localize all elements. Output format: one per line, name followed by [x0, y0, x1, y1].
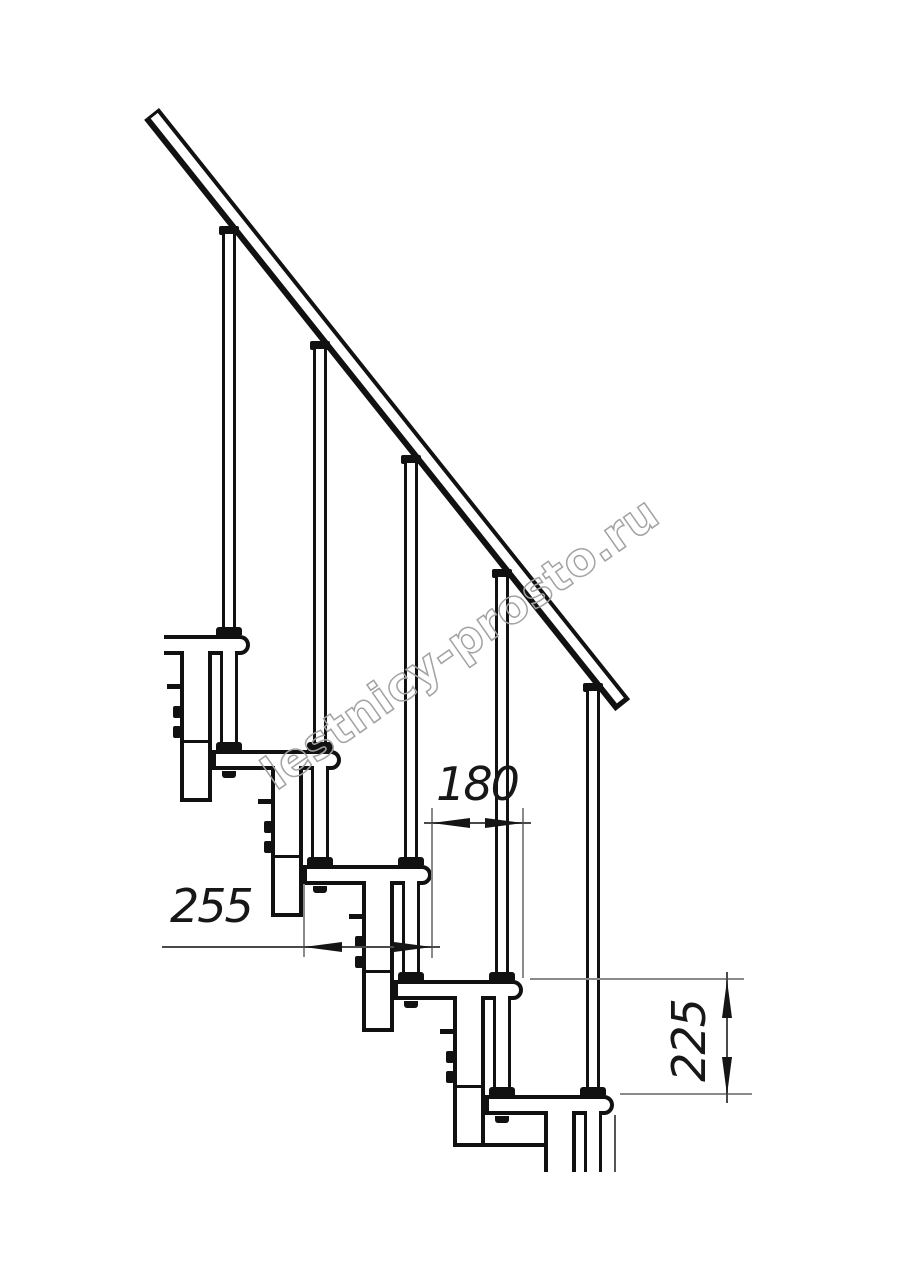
- dim-225-arrow-up: [722, 980, 732, 1018]
- dim-225-extension-line-top: [530, 978, 744, 980]
- dim-180-extension-line-right: [522, 808, 524, 978]
- dim-180-arrow-right: [485, 818, 523, 828]
- dim-180-extension-line-left: [431, 808, 433, 958]
- dim-225-arrow-down: [722, 1057, 732, 1095]
- dim-180-label: 180: [427, 760, 527, 808]
- staircase-technical-drawing: lestnicy-prosto.ru 180 255 225: [0, 0, 914, 1280]
- dimension-layer: 180 255 225: [0, 0, 914, 1280]
- dim-180-arrow-left: [432, 818, 470, 828]
- dim-225-label: 225: [665, 991, 713, 1091]
- dim-255-label: 255: [170, 882, 252, 930]
- dim-225-extension-line-bottom: [620, 1093, 752, 1095]
- dim-255-arrow-right: [394, 942, 432, 952]
- dim-255-arrow-left: [304, 942, 342, 952]
